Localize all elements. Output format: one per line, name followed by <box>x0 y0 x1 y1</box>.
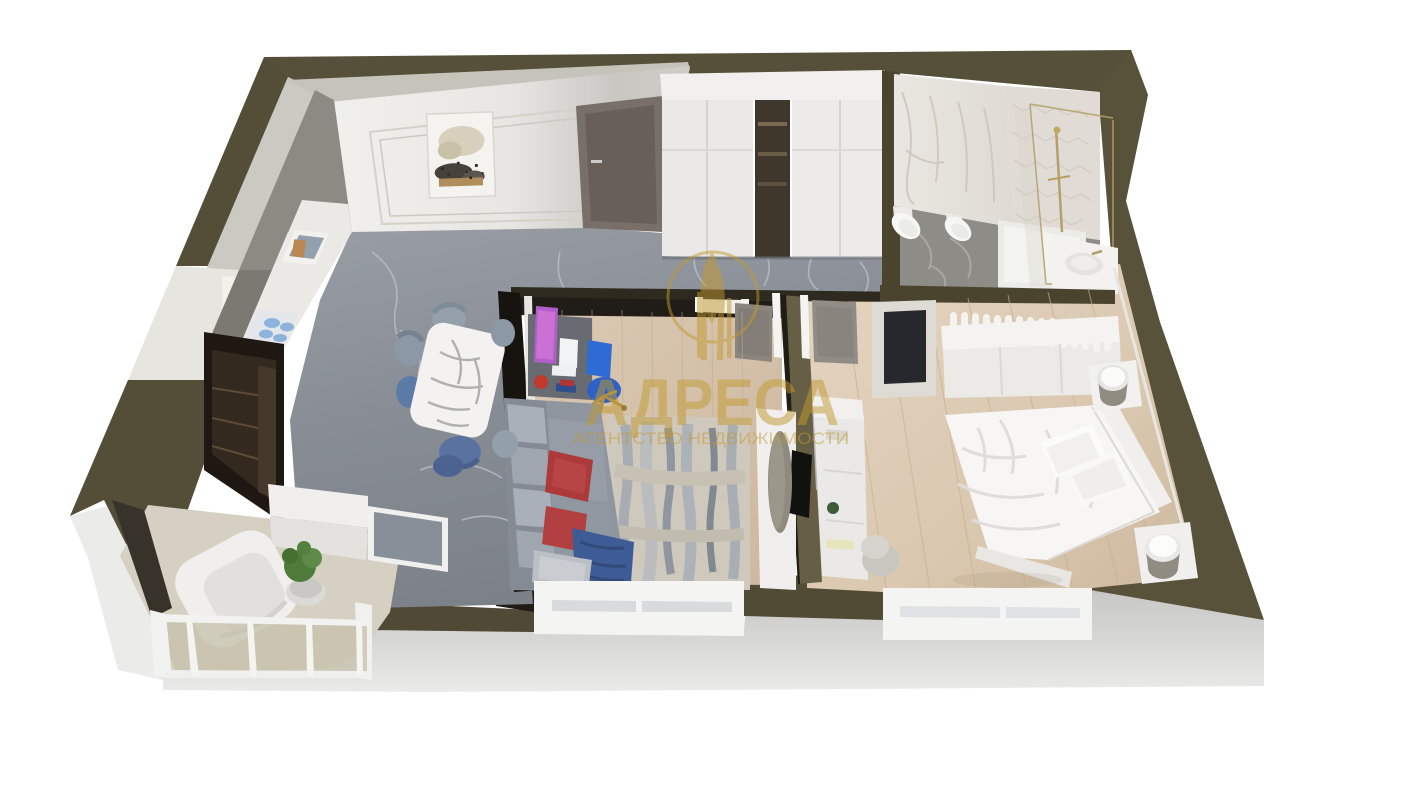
svg-text:АГЕНТСТВО НЕДВИЖИМОСТИ: АГЕНТСТВО НЕДВИЖИМОСТИ <box>573 430 849 448</box>
svg-text:АДРЕСА: АДРЕСА <box>585 365 840 439</box>
